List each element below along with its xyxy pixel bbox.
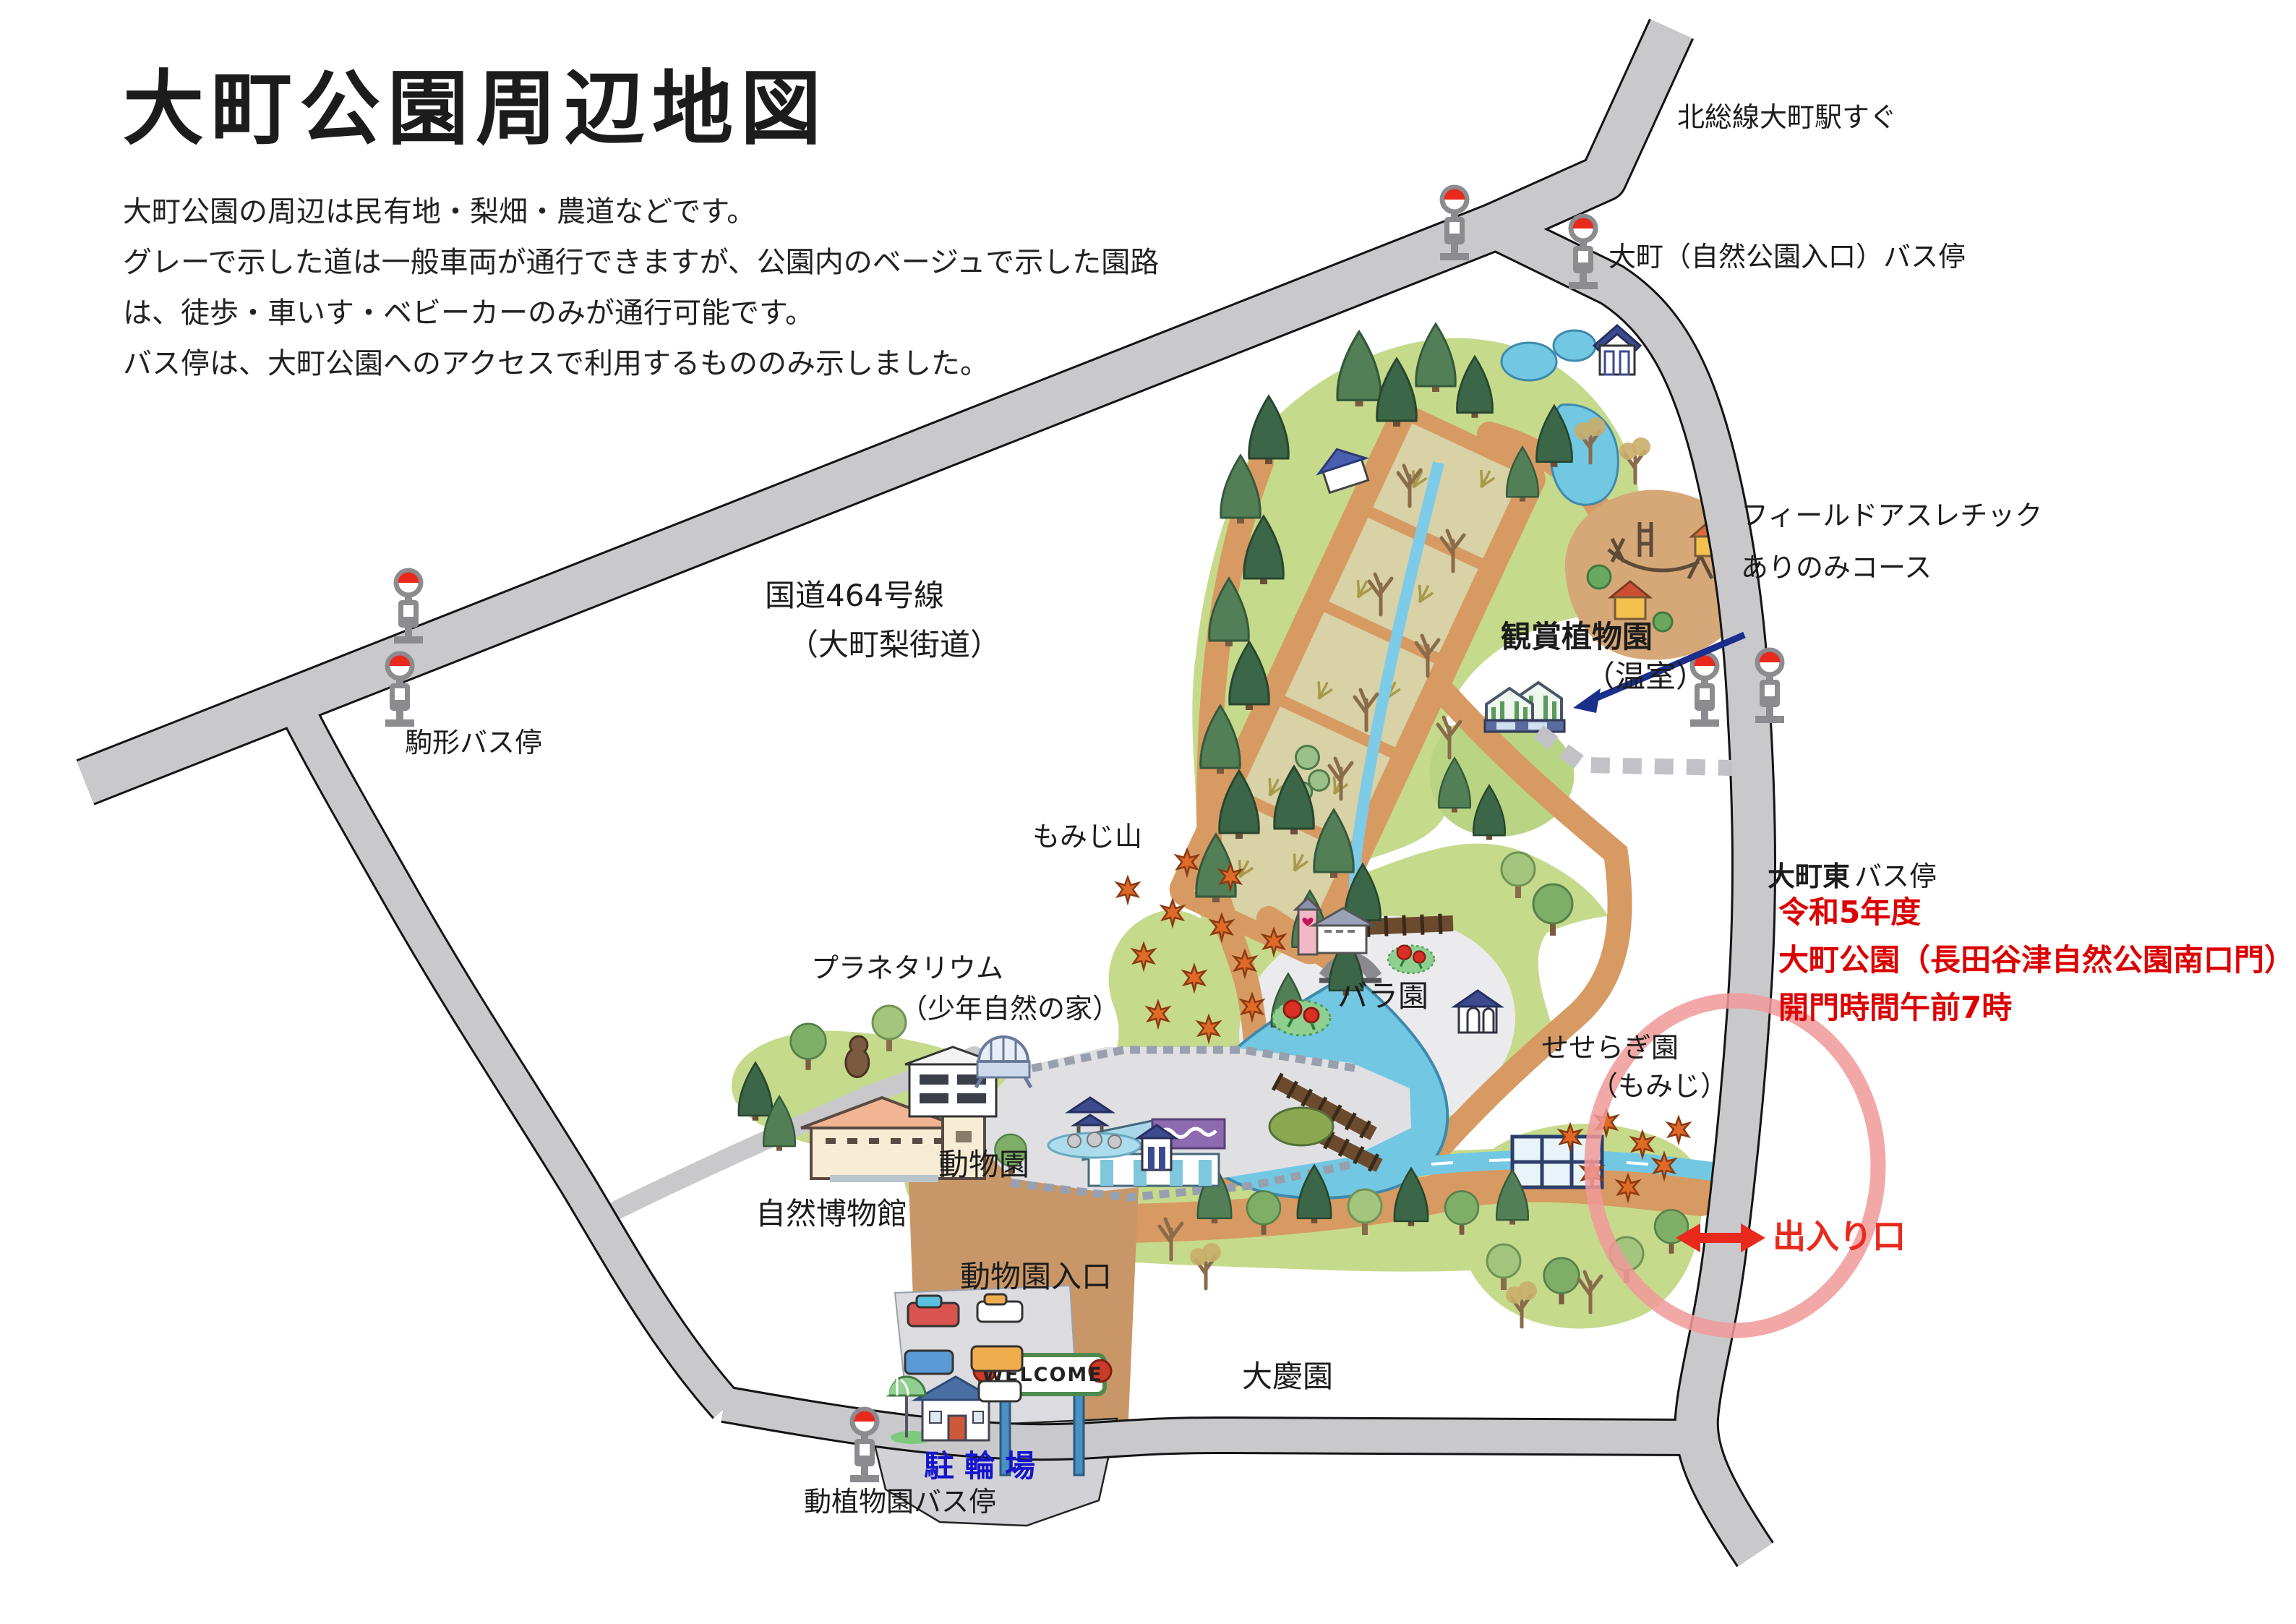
label-route464: 国道464号線 xyxy=(765,578,944,613)
bus-stop-icon xyxy=(385,654,414,727)
description-line: グレーで示した道は一般車両が通行できますが、公園内のベージュで示した園路 xyxy=(123,237,1352,288)
label-athletic-2: ありのみコース xyxy=(1741,552,1932,584)
label-bicycle-parking: 駐輪場 xyxy=(924,1448,1045,1484)
notice-line1: 令和5年度 xyxy=(1778,894,1921,930)
label-bus-stop-omachi-higashi: 大町東バス停 xyxy=(1768,860,1937,892)
label-momiji-hill: もみじ山 xyxy=(1032,821,1142,852)
rose-bed xyxy=(1272,1001,1330,1035)
notice-line2: 大町公園（長田谷津自然公園南口門） xyxy=(1778,942,2295,978)
label-bus-stop-omachi: 大町（自然公園入口）バス停 xyxy=(1609,241,1966,273)
rose-bed xyxy=(1388,946,1434,973)
description-line: 大町公園の周辺は民有地・梨畑・農道などです。 xyxy=(123,187,1352,237)
bus-stop-icon xyxy=(850,1409,879,1482)
label-route464-2: （大町梨街道） xyxy=(788,627,1001,662)
label-planetarium-2: （少年自然の家） xyxy=(900,993,1120,1025)
description-line: は、徒歩・車いす・ベビーカーのみが通行可能です。 xyxy=(123,288,1352,338)
label-station-note: 北総線大町駅すぐ xyxy=(1677,101,1897,133)
label-greenhouse: 観賞植物園 xyxy=(1501,619,1653,654)
description-line: バス停は、大町公園へのアクセスで利用するもののみ示しました。 xyxy=(123,338,1352,389)
label-planetarium: プラネタリウム xyxy=(811,952,1003,984)
label-rose-garden: バラ園 xyxy=(1337,978,1428,1014)
label-zoo-entrance: 動物園入口 xyxy=(960,1259,1112,1294)
label-greenhouse-2: （温室） xyxy=(1585,659,1706,694)
label-museum: 自然博物館 xyxy=(755,1196,907,1231)
label-gate: 出入り口 xyxy=(1773,1217,1906,1256)
zoo-pond xyxy=(1048,1132,1141,1158)
notice-line3: 開門時間午前7時 xyxy=(1778,990,2012,1025)
label-seseragi-2: （もみじ） xyxy=(1590,1070,1728,1102)
label-bus-stop-zoo-botanical: 動植物園バス停 xyxy=(804,1486,996,1518)
map-page: WELCOME xyxy=(0,0,2296,1624)
label-zoo: 動物園 xyxy=(938,1147,1029,1182)
page-title: 大町公園周辺地図 xyxy=(123,43,1352,161)
label-bus-stop-komagata: 駒形バス停 xyxy=(405,727,542,758)
label-daikeien: 大慶園 xyxy=(1242,1359,1333,1394)
label-seseragi: せせらぎ園 xyxy=(1541,1032,1679,1064)
label-athletic: フィールドアスレチック xyxy=(1741,500,2042,531)
header-block: 大町公園周辺地図 大町公園の周辺は民有地・梨畑・農道などです。 グレーで示した道… xyxy=(123,43,1352,389)
